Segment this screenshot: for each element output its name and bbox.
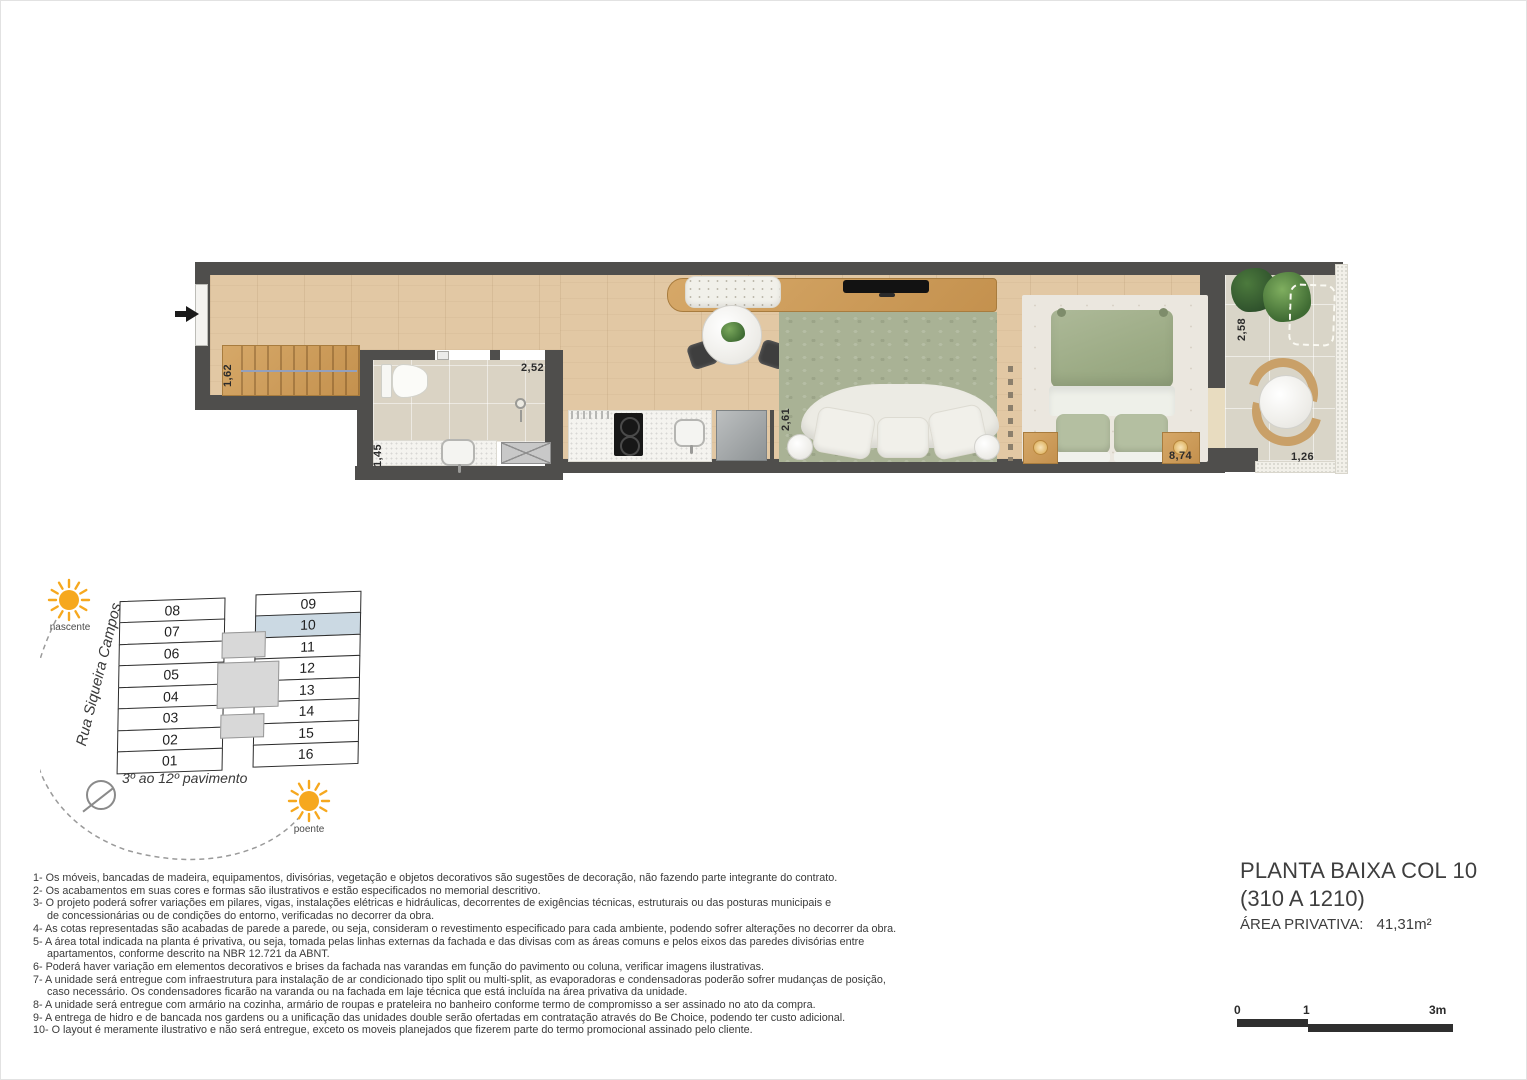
plan-sheet: 1,62 1,45 2,52: [0, 0, 1527, 1080]
side-table-right: [974, 434, 1000, 460]
floor-plan: 1,62 1,45 2,52: [195, 258, 1350, 490]
keyplan-building: 08 07 06 05 04 03 02 01 09 10 11 12 13 1…: [117, 592, 365, 777]
balcony-edge-right: [1335, 264, 1348, 474]
scale-tick-3m: 3m: [1429, 1003, 1446, 1017]
entry-arrow-head-icon: [186, 306, 199, 322]
note-9: 9- A entrega de hidro e de bancada nos g…: [33, 1012, 1203, 1025]
balcony-table: [1259, 375, 1313, 429]
dim-closet: 1,62: [222, 357, 234, 387]
building-core: [217, 661, 280, 709]
north-indicator-icon: [86, 780, 116, 810]
wall-balcony-separator-bottom: [1200, 448, 1258, 472]
dim-bath-length: 2,52: [521, 362, 544, 374]
sofa: [801, 384, 999, 460]
bench-cushion: [685, 276, 781, 308]
note-1: 1- Os móveis, bancadas de madeira, equip…: [33, 872, 1203, 885]
sofa-cushion: [811, 405, 876, 460]
disclaimer-notes: 1- Os móveis, bancadas de madeira, equip…: [33, 872, 1203, 1037]
private-area-label: ÁREA PRIVATIVA:: [1240, 916, 1363, 933]
dim-balcony-width: 1,26: [1291, 451, 1314, 463]
kitchen-knee-wall: [770, 410, 774, 462]
shower-pipe: [520, 410, 522, 422]
duvet-knob: [1159, 308, 1168, 317]
room-divider-dashed: [1008, 366, 1013, 461]
sun-east-label: nascente: [39, 622, 101, 633]
bathroom-counter: [373, 440, 497, 466]
private-area-value: 41,31m²: [1377, 916, 1432, 933]
bed-pillow-left: [1056, 414, 1110, 454]
entry-arrow-icon: [175, 311, 186, 317]
bathroom-sink-icon: [441, 439, 475, 466]
dim-balcony-depth: 2,58: [1236, 311, 1248, 341]
building-core: [220, 713, 264, 739]
fridge-icon: [716, 410, 767, 461]
title-block: PLANTA BAIXA COL 10 (310 A 1210) ÁREA PR…: [1240, 858, 1477, 933]
bed-pillow-right: [1114, 414, 1168, 454]
floors-label: 3º ao 12º pavimento: [122, 770, 247, 786]
note-2: 2- Os acabamentos em suas cores e formas…: [33, 885, 1203, 898]
dish-rack: [571, 411, 611, 419]
private-area-line: ÁREA PRIVATIVA: 41,31m²: [1240, 916, 1477, 933]
entry-corridor-floor: [210, 275, 560, 350]
kitchen-sink-icon: [674, 419, 705, 447]
scale-tick-0: 0: [1234, 1003, 1241, 1017]
bed-sheet: [1049, 386, 1175, 416]
note-6: 6- Poderá haver variação em elementos de…: [33, 961, 1203, 974]
table-plant-icon: [721, 322, 745, 342]
plan-subtitle: (310 A 1210): [1240, 886, 1477, 912]
bed-underpillow-right: [1114, 452, 1168, 462]
side-table-left: [787, 434, 813, 460]
unit-column-left: 08 07 06 05 04 03 02 01: [117, 598, 226, 774]
dim-bedroom: 8,74: [1169, 450, 1192, 462]
sofa-cushion: [877, 417, 929, 458]
scale-bar-segment-1: [1237, 1019, 1308, 1027]
sun-nascente-icon: [46, 577, 92, 623]
building-core: [221, 631, 265, 659]
wall-bottom-left: [195, 395, 373, 410]
bath-door-leaf: [437, 351, 449, 360]
toilet-icon: [392, 364, 428, 398]
toilet-tank: [381, 364, 392, 398]
bed-underpillow-left: [1056, 452, 1110, 462]
unit-cell: 16: [253, 741, 359, 768]
dim-living: 2,61: [780, 401, 792, 431]
plan-title: PLANTA BAIXA COL 10: [1240, 858, 1477, 884]
scale-tick-1: 1: [1303, 1003, 1310, 1017]
lamp-icon: [1033, 440, 1048, 455]
note-10: 10- O layout é meramente ilustrativo e n…: [33, 1024, 1203, 1037]
cooktop-icon: [614, 413, 643, 456]
wardrobe-rail: [241, 370, 357, 372]
note-4: 4- As cotas representadas são acabadas d…: [33, 923, 1203, 936]
duvet-knob: [1057, 308, 1066, 317]
note-3: 3- O projeto poderá sofrer variações em …: [33, 897, 1203, 922]
condenser-space-dashed: [1288, 283, 1336, 347]
shaft-hatch: [501, 442, 551, 464]
note-7: 7- A unidade será entregue com infraestr…: [33, 974, 1203, 999]
shower-mixer-icon: [515, 398, 526, 409]
scale-bar-segment-2: [1308, 1024, 1453, 1032]
wardrobe: [222, 345, 360, 396]
tv-icon: [843, 280, 929, 293]
sun-poente-icon: [286, 778, 332, 824]
bed-duvet: [1051, 310, 1173, 388]
note-5: 5- A área total indicada na planta é pri…: [33, 936, 1203, 961]
note-8: 8- A unidade será entregue com armário n…: [33, 999, 1203, 1012]
dim-bath-width: 1,45: [372, 437, 384, 467]
key-plan: nascente 08 07 06 05 04 03 02 01 09 10 1…: [40, 580, 375, 885]
scale-bar: 0 1 3m: [1237, 1003, 1453, 1037]
sun-west-label: poente: [278, 824, 340, 835]
tv-stand: [879, 293, 895, 297]
wall-top: [200, 262, 1343, 275]
